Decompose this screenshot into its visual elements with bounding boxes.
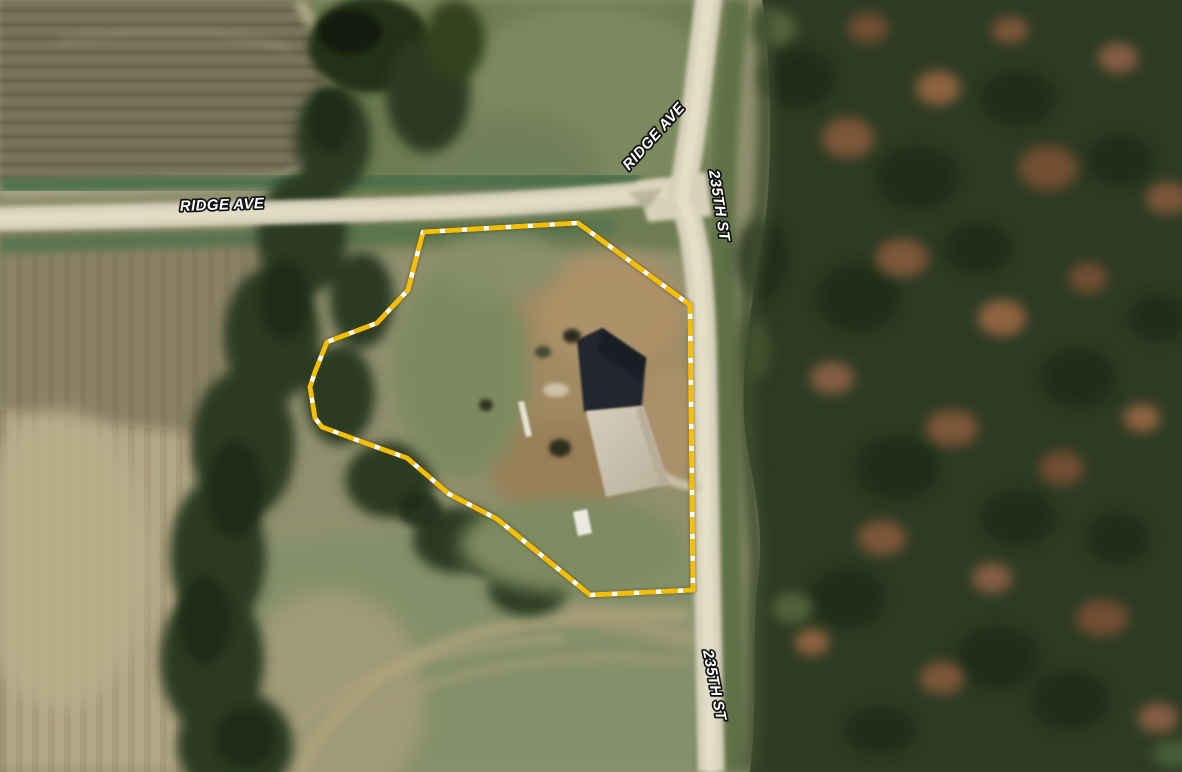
forest-east — [736, 0, 1182, 772]
field-northwest — [0, 0, 333, 189]
aerial-map-image: RIDGE AVE RIDGE AVE 235TH ST 235TH ST — [0, 0, 1182, 772]
road-label-ridge-ave-west: RIDGE AVE — [180, 195, 266, 215]
map-canvas: RIDGE AVE RIDGE AVE 235TH ST 235TH ST — [0, 0, 1182, 772]
